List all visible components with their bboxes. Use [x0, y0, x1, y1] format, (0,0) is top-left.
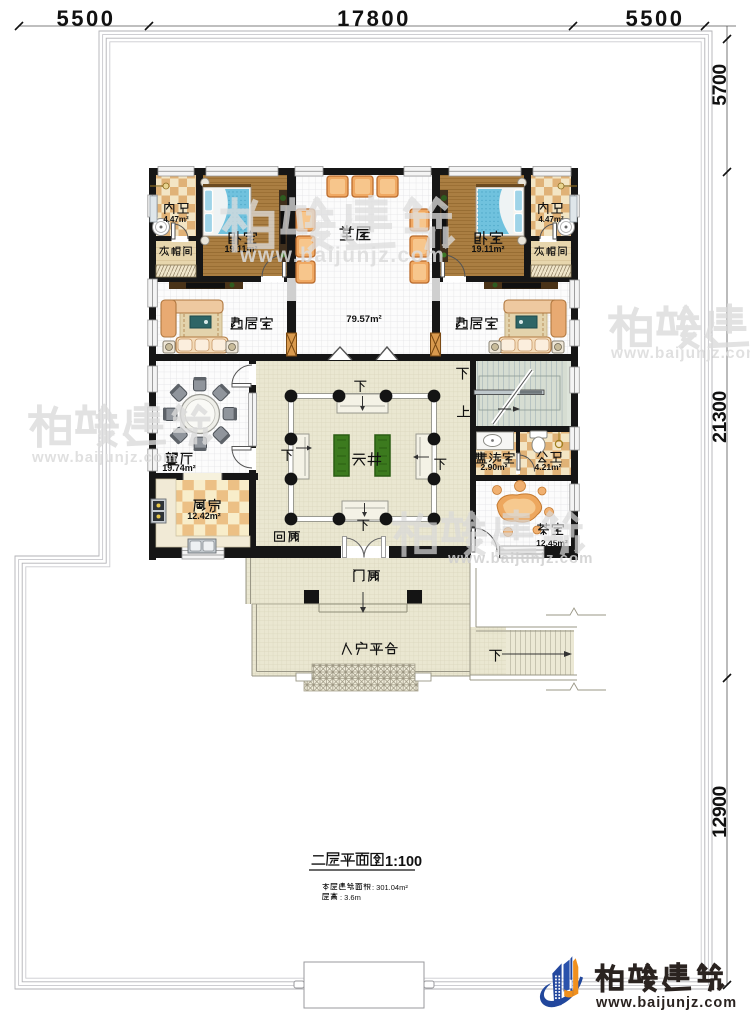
- svg-text:17800: 17800: [337, 6, 411, 31]
- svg-text:5500: 5500: [57, 6, 116, 31]
- svg-text:79.57m²: 79.57m²: [346, 314, 381, 325]
- svg-text:www.baijunjz.com: www.baijunjz.com: [595, 995, 737, 1011]
- svg-text:www.baijunjz.com: www.baijunjz.com: [447, 550, 593, 567]
- svg-text:1:100: 1:100: [385, 854, 422, 870]
- svg-text:5500: 5500: [626, 6, 685, 31]
- svg-text:4.47m²: 4.47m²: [538, 215, 564, 224]
- svg-text:2.90m²: 2.90m²: [481, 462, 508, 472]
- svg-text:: 3.6m: : 3.6m: [340, 893, 361, 902]
- svg-text:12.42m²: 12.42m²: [187, 511, 221, 521]
- svg-text:19.11m²: 19.11m²: [471, 244, 504, 254]
- svg-text:www.baijunjz.com: www.baijunjz.com: [31, 449, 177, 466]
- svg-text:12900: 12900: [709, 785, 731, 837]
- svg-text:www.baijunjz.com: www.baijunjz.com: [610, 345, 750, 362]
- svg-text:5700: 5700: [709, 64, 731, 106]
- svg-text:www.baijunjz.com: www.baijunjz.com: [239, 244, 445, 267]
- svg-text:21300: 21300: [709, 390, 731, 442]
- svg-text:4.47m²: 4.47m²: [163, 215, 189, 224]
- svg-text:: 301.04m²: : 301.04m²: [372, 883, 408, 892]
- svg-text:4.21m²: 4.21m²: [535, 462, 562, 472]
